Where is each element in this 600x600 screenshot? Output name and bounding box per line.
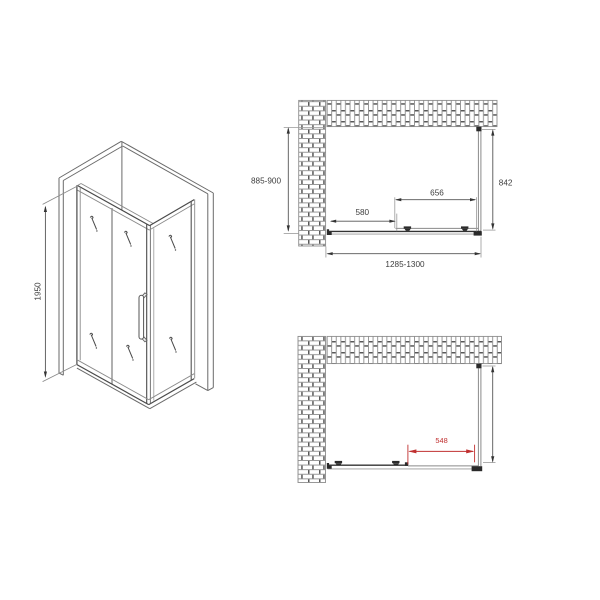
- svg-text:1950: 1950: [34, 282, 43, 301]
- svg-text:548: 548: [435, 436, 447, 445]
- svg-text:885-900: 885-900: [251, 176, 281, 185]
- svg-text:656: 656: [430, 189, 444, 198]
- svg-text:580: 580: [355, 208, 369, 217]
- svg-text:842: 842: [499, 179, 513, 188]
- svg-text:1285-1300: 1285-1300: [385, 260, 425, 269]
